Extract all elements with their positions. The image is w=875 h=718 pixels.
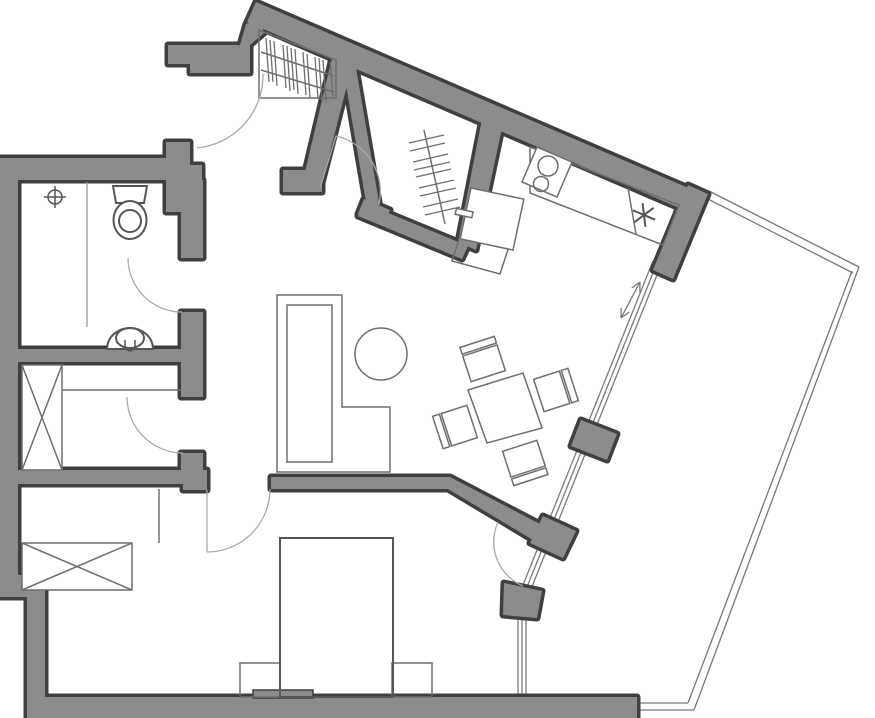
floor-plan-canvas xyxy=(0,0,875,718)
toilet-icon xyxy=(113,186,147,239)
bedroom-wardrobe-x xyxy=(22,543,132,590)
storage-cabinet-x xyxy=(22,365,62,470)
floor-plan-page xyxy=(0,0,875,718)
